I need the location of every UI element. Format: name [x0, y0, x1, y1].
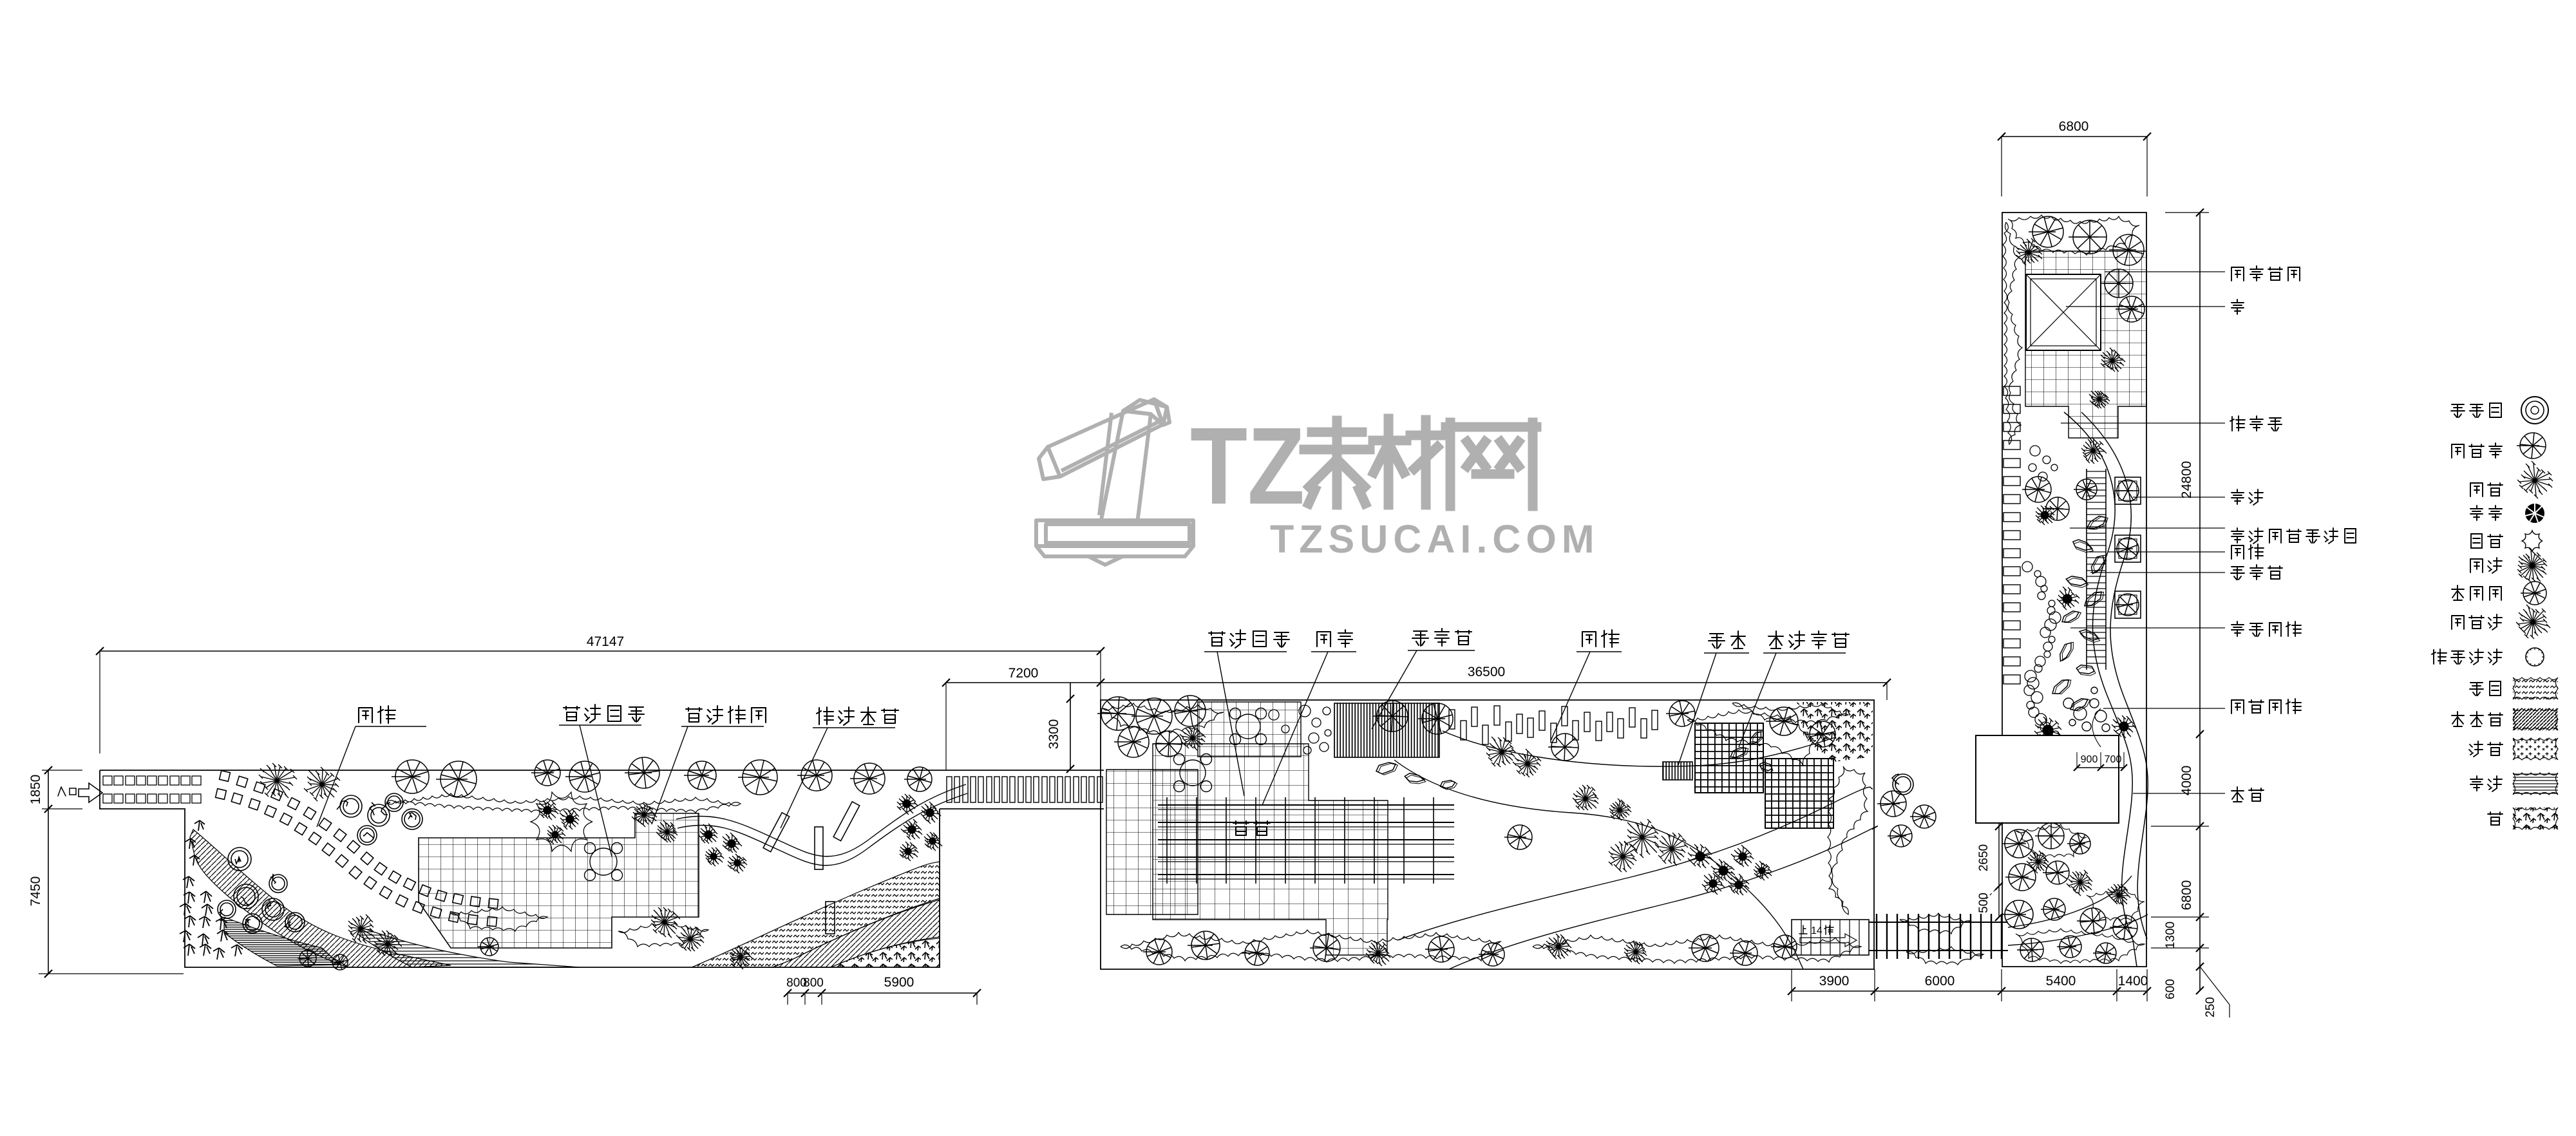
svg-text:900: 900 — [2081, 754, 2098, 765]
svg-text:6000: 6000 — [1925, 974, 1955, 989]
svg-text:1850: 1850 — [28, 775, 43, 805]
svg-text:250: 250 — [2204, 997, 2217, 1018]
svg-text:4000: 4000 — [2179, 766, 2194, 796]
svg-text:800: 800 — [803, 976, 824, 990]
svg-text:24800: 24800 — [2179, 461, 2194, 498]
svg-text:47147: 47147 — [587, 634, 624, 649]
svg-text:500: 500 — [1977, 893, 1991, 913]
svg-text:36500: 36500 — [1468, 665, 1505, 679]
svg-text:3900: 3900 — [1819, 974, 1850, 989]
svg-text:5400: 5400 — [2046, 974, 2076, 989]
svg-text:TZ: TZ — [1190, 405, 1305, 527]
svg-text:5900: 5900 — [884, 975, 914, 990]
svg-text:3300: 3300 — [1046, 719, 1061, 750]
svg-text:600: 600 — [2164, 979, 2177, 999]
svg-text:7450: 7450 — [28, 876, 43, 907]
svg-text:1300: 1300 — [2164, 922, 2177, 949]
svg-text:14: 14 — [1811, 925, 1823, 936]
svg-text:TZSUCAI.COM: TZSUCAI.COM — [1270, 517, 1600, 561]
svg-text:6800: 6800 — [2059, 119, 2089, 134]
svg-text:2650: 2650 — [1977, 844, 1991, 871]
svg-text:6800: 6800 — [2179, 880, 2194, 911]
svg-text:7200: 7200 — [1009, 666, 1039, 681]
svg-text:1400: 1400 — [2118, 974, 2148, 989]
svg-text:700: 700 — [2105, 754, 2122, 765]
